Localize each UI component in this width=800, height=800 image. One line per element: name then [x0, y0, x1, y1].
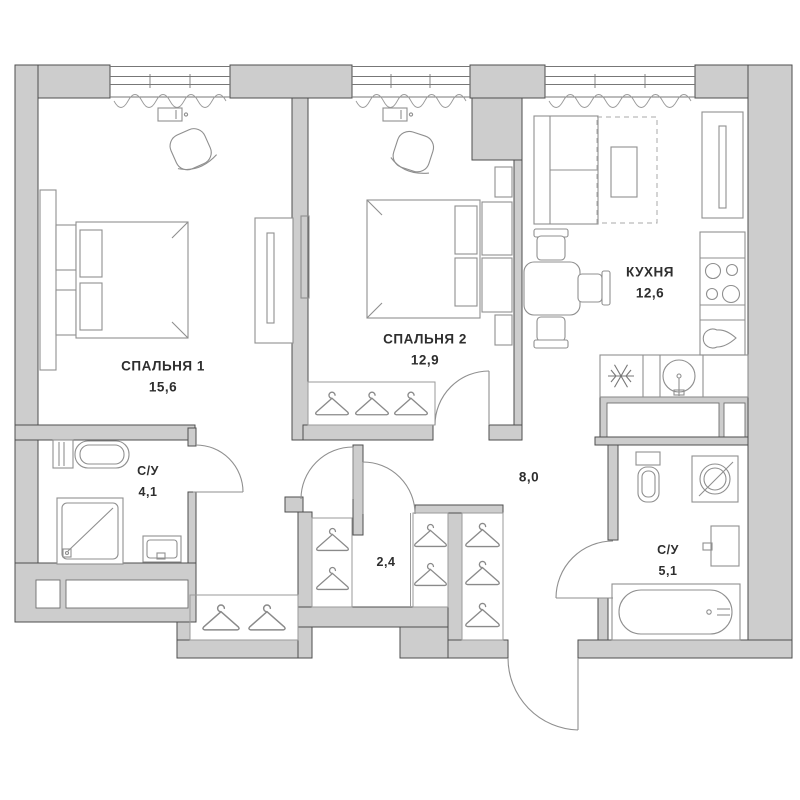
door-bathroom-2 — [556, 541, 613, 598]
chair-icon — [165, 124, 218, 176]
shower-icon — [57, 498, 123, 564]
round-sink-icon — [663, 360, 695, 396]
hanger-icon — [466, 603, 500, 626]
hanger-icon — [415, 525, 447, 547]
bedroom-2-area: 12,9 — [411, 353, 439, 368]
door-corridor — [301, 447, 353, 499]
kitchen-area: 12,6 — [636, 286, 664, 301]
hanger-icon — [317, 568, 349, 590]
floor-plan: СПАЛЬНЯ 1 15,6 СПАЛЬНЯ 2 12,9 КУХНЯ 12,6… — [0, 0, 800, 800]
kitchen-sink-icon — [703, 329, 736, 348]
door-bathroom-1 — [193, 445, 243, 492]
coffee-table — [611, 147, 637, 197]
bedroom-1-area: 15,6 — [149, 380, 177, 395]
nightstand — [482, 258, 512, 312]
bed-headboard — [40, 190, 56, 370]
nightstand — [495, 315, 512, 345]
hanger-icon — [249, 605, 285, 630]
sink-icon — [143, 536, 181, 562]
bathtub-icon — [612, 584, 740, 640]
toilet-icon — [53, 440, 129, 468]
curtain-wave — [356, 95, 466, 108]
chair-icon — [389, 128, 440, 177]
closet-area: 2,4 — [377, 555, 396, 569]
closet-niche — [190, 595, 298, 640]
hanger-icon — [466, 561, 500, 584]
radiator-icon — [158, 108, 182, 121]
window-kitchen — [545, 67, 695, 108]
bedroom-2-name: СПАЛЬНЯ 2 — [383, 332, 467, 347]
window-bedroom-1 — [110, 67, 230, 108]
double-bed — [76, 222, 188, 338]
fridge-snowflake-icon — [608, 365, 634, 388]
hallway-area: 8,0 — [519, 470, 539, 485]
bathroom-2-name: С/У — [657, 543, 679, 557]
door-entrance — [508, 658, 578, 730]
hanger-icon — [466, 523, 500, 546]
bedroom-1-name: СПАЛЬНЯ 1 — [121, 359, 205, 374]
nightstand — [56, 225, 76, 270]
bedroom-1-furniture — [40, 108, 293, 370]
dining-chair — [537, 236, 565, 260]
kitchen-name: КУХНЯ — [626, 265, 674, 280]
door-closet — [363, 462, 415, 514]
hanger-icon — [395, 392, 428, 415]
dining-chair — [602, 271, 610, 305]
dining-table — [524, 262, 580, 315]
hanger-icon — [317, 529, 349, 551]
dining-chair — [578, 274, 602, 302]
bathroom-1-furniture — [53, 440, 181, 564]
window-bedroom-2 — [352, 67, 470, 108]
washing-machine-icon — [692, 456, 738, 502]
bathroom-2-area: 5,1 — [659, 564, 678, 578]
sink-icon — [703, 526, 739, 566]
hanger-icon — [316, 392, 349, 415]
toilet-icon — [636, 452, 660, 502]
kitchen-furniture — [524, 112, 748, 397]
closet-section — [462, 513, 503, 640]
dining-chair — [534, 340, 568, 348]
radiator-icon — [383, 108, 407, 121]
stove-hob-icon — [706, 264, 740, 303]
door-bedroom-2 — [435, 371, 489, 425]
closet-section — [312, 518, 352, 607]
bathroom-1-name: С/У — [137, 464, 159, 478]
nightstand — [495, 167, 512, 197]
closet-section — [413, 513, 448, 607]
curtain-wave — [549, 95, 691, 108]
tv-stand — [702, 112, 743, 218]
double-bed — [367, 200, 480, 318]
hanger-icon — [356, 392, 389, 415]
hanger-icon — [415, 564, 447, 586]
hanger-icon — [203, 605, 239, 630]
bathroom-1-area: 4,1 — [139, 485, 158, 499]
nightstand — [482, 202, 512, 255]
dining-chair — [537, 317, 565, 341]
nightstand — [56, 290, 76, 335]
floor-plan-drawing — [0, 0, 800, 800]
curtain-wave — [114, 95, 226, 108]
